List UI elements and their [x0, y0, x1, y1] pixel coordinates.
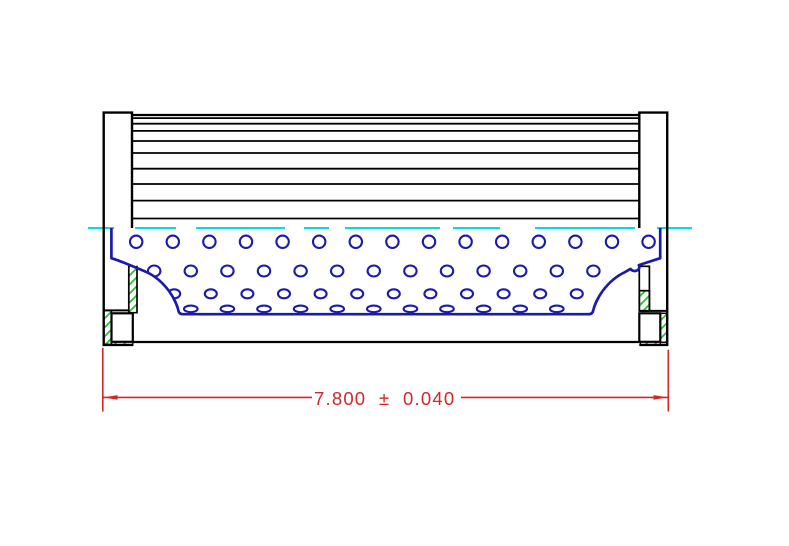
svg-text:7.800 ± 0.040: 7.800 ± 0.040 [314, 388, 455, 409]
